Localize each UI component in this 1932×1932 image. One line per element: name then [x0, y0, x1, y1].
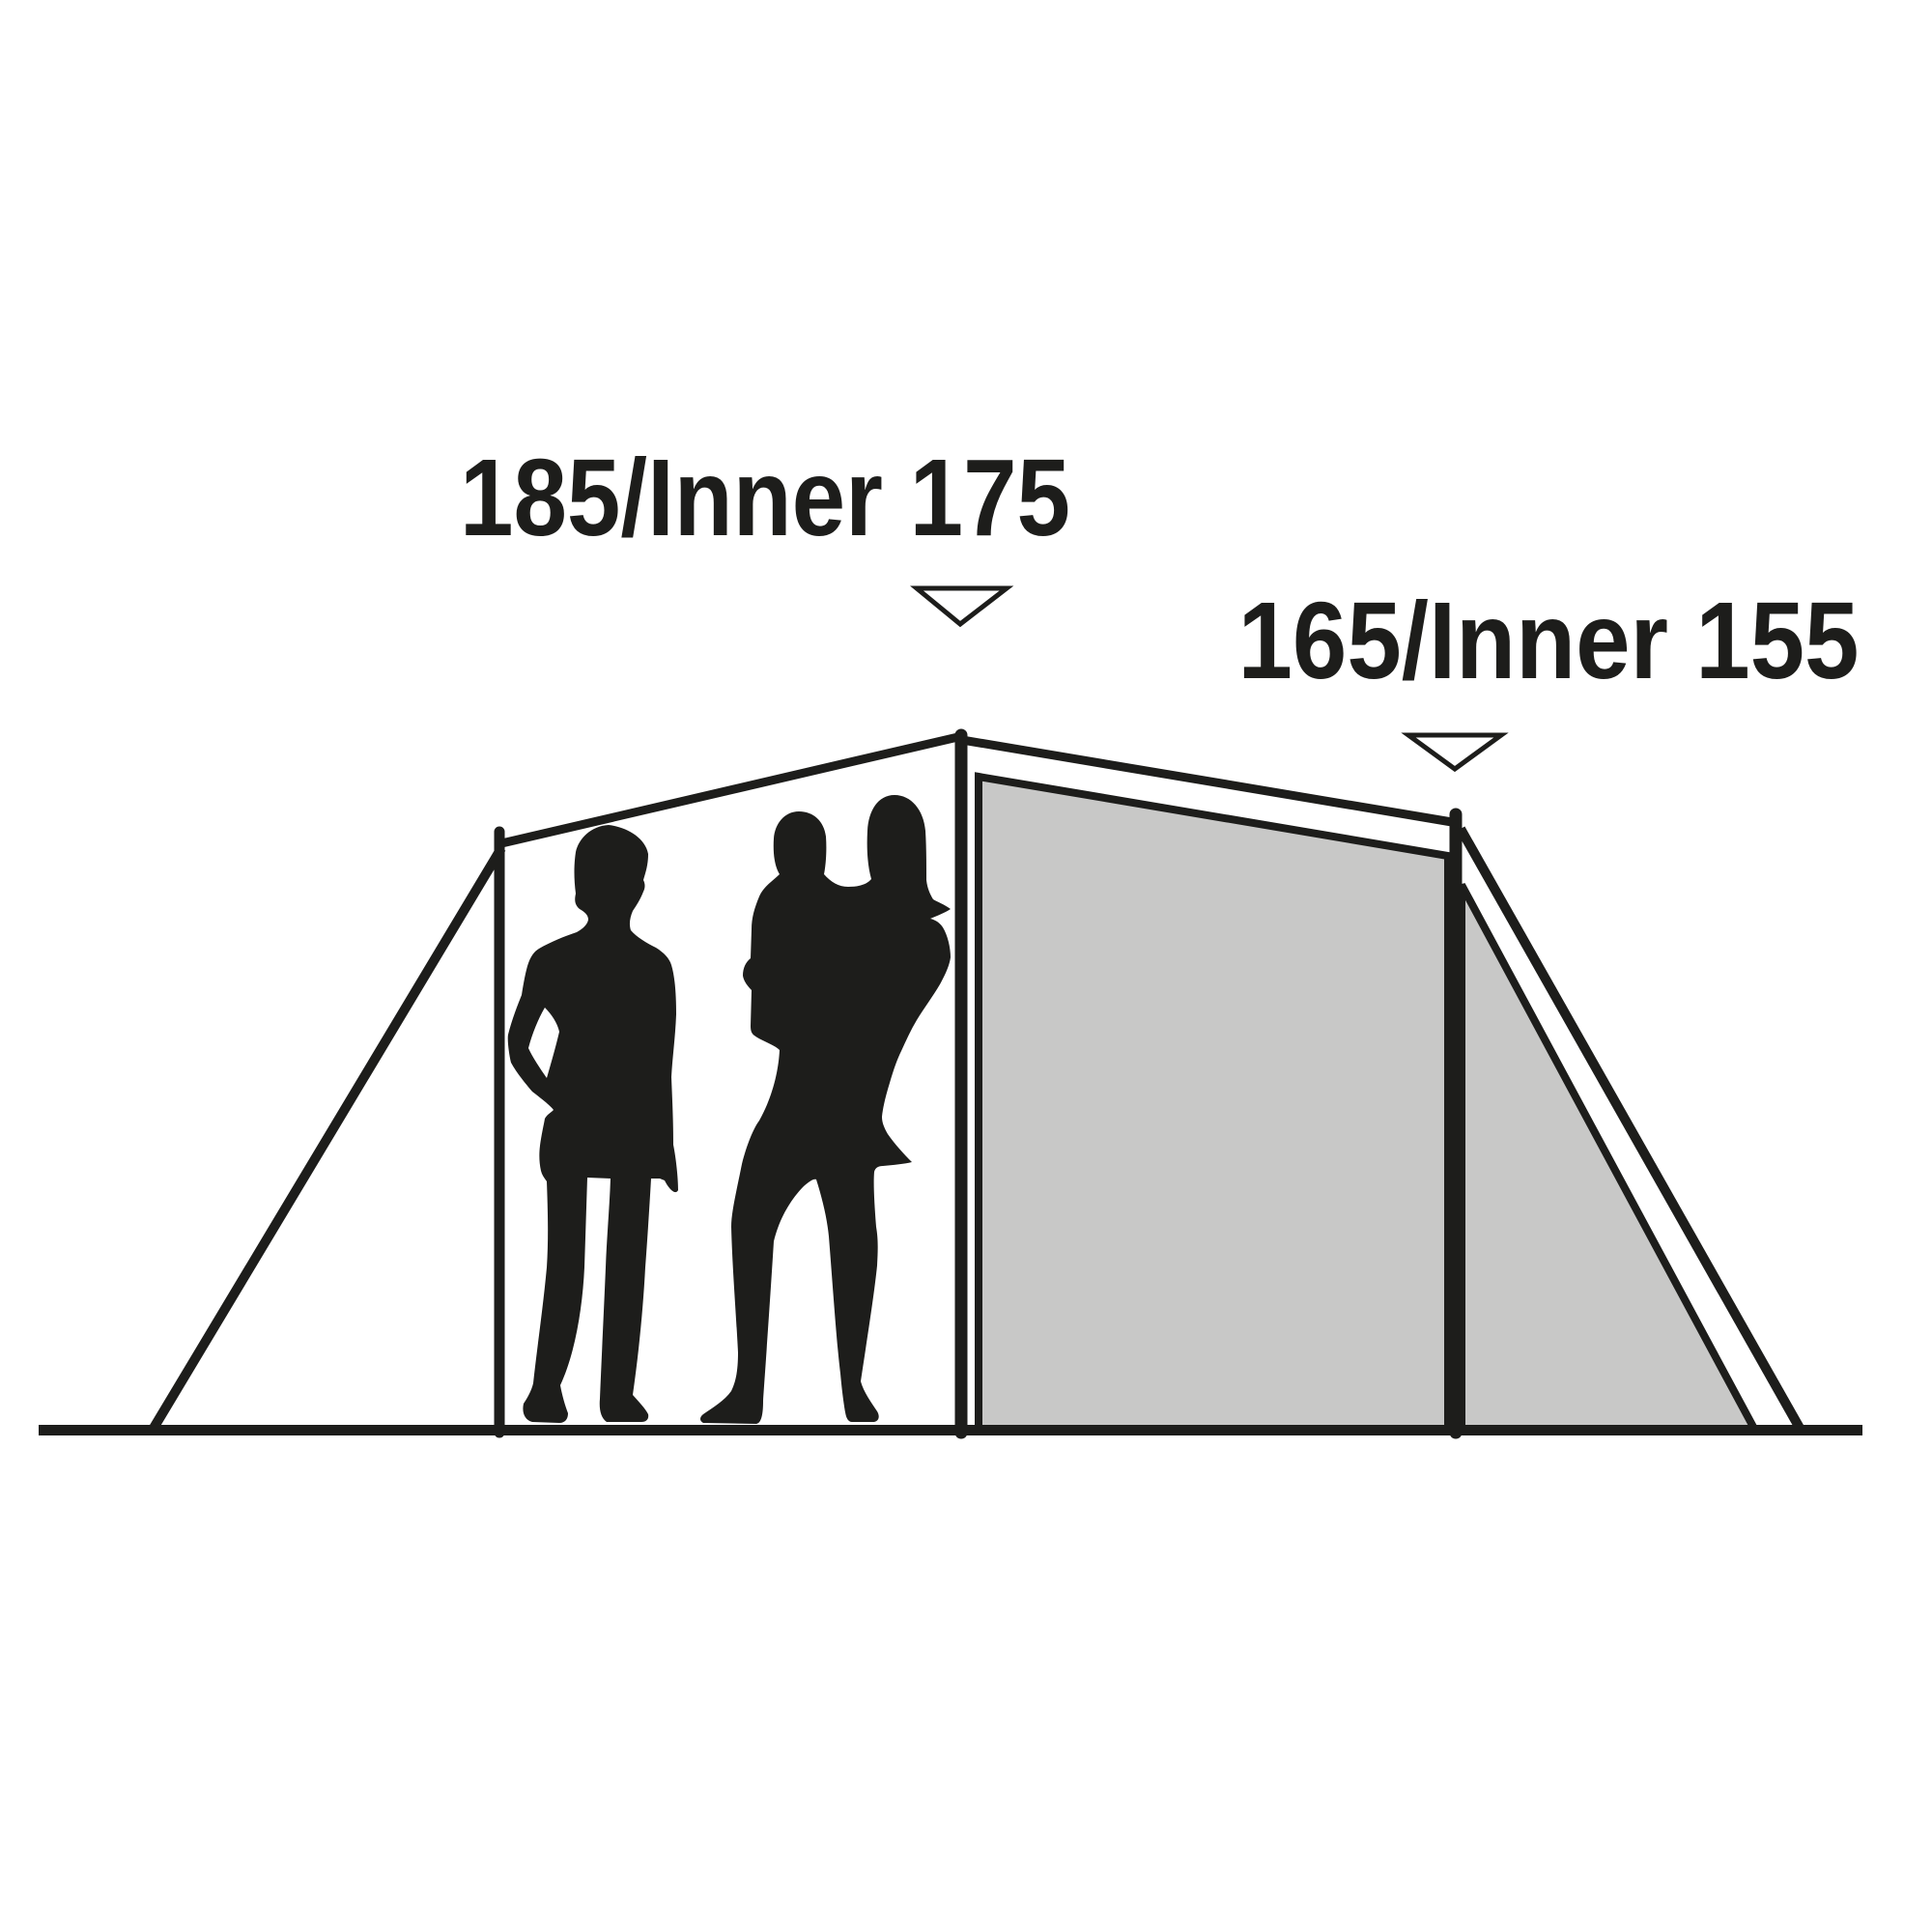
svg-text:165/Inner 155: 165/Inner 155	[1238, 580, 1860, 701]
svg-text:185/Inner 175: 185/Inner 175	[460, 437, 1070, 558]
